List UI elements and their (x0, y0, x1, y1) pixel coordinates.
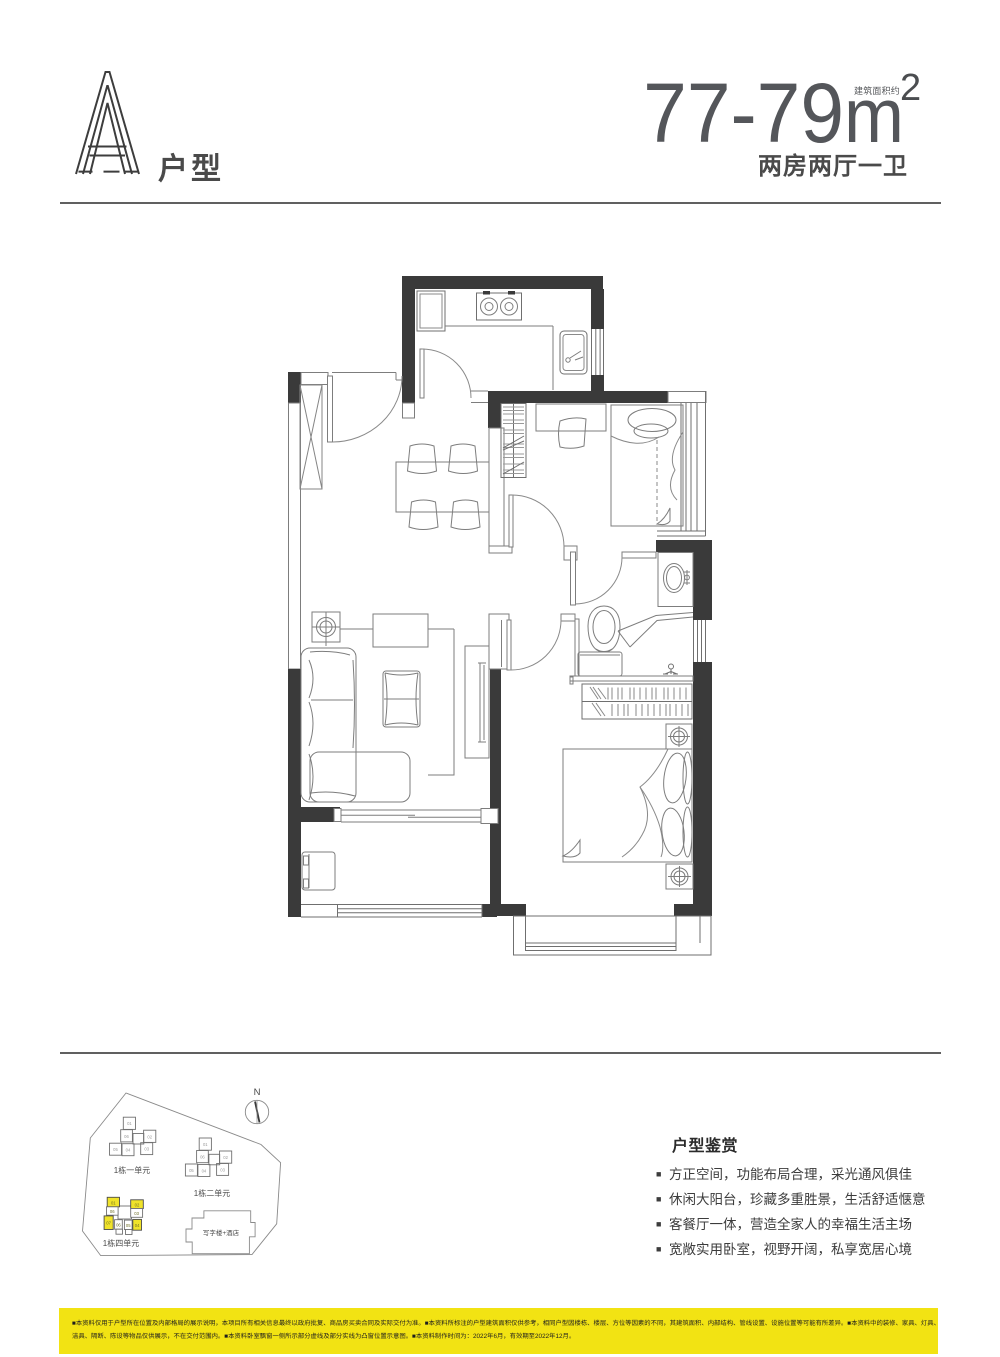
svg-text:02: 02 (223, 1155, 228, 1160)
svg-text:1栋二单元: 1栋二单元 (194, 1188, 230, 1198)
svg-text:01: 01 (127, 1121, 132, 1126)
svg-text:06: 06 (124, 1134, 129, 1139)
svg-text:07: 07 (106, 1221, 111, 1226)
svg-text:03: 03 (134, 1211, 139, 1216)
svg-text:06: 06 (110, 1209, 115, 1214)
svg-text:04: 04 (202, 1169, 207, 1174)
svg-text:03: 03 (220, 1168, 225, 1173)
svg-text:01: 01 (111, 1200, 116, 1205)
svg-text:写字楼+酒店: 写字楼+酒店 (203, 1228, 240, 1237)
svg-text:02: 02 (135, 1202, 140, 1207)
svg-text:1栋四单元: 1栋四单元 (103, 1238, 139, 1248)
svg-text:1栋一单元: 1栋一单元 (114, 1165, 150, 1175)
svg-text:06: 06 (200, 1155, 205, 1160)
svg-text:06: 06 (116, 1223, 121, 1228)
svg-text:01: 01 (203, 1142, 208, 1147)
svg-text:N: N (254, 1087, 261, 1098)
svg-text:04: 04 (126, 1148, 131, 1153)
svg-text:05: 05 (126, 1223, 131, 1228)
svg-text:05: 05 (189, 1168, 194, 1173)
svg-text:04: 04 (135, 1223, 140, 1228)
svg-text:05: 05 (113, 1147, 118, 1152)
svg-text:03: 03 (144, 1147, 149, 1152)
svg-text:02: 02 (147, 1134, 152, 1139)
